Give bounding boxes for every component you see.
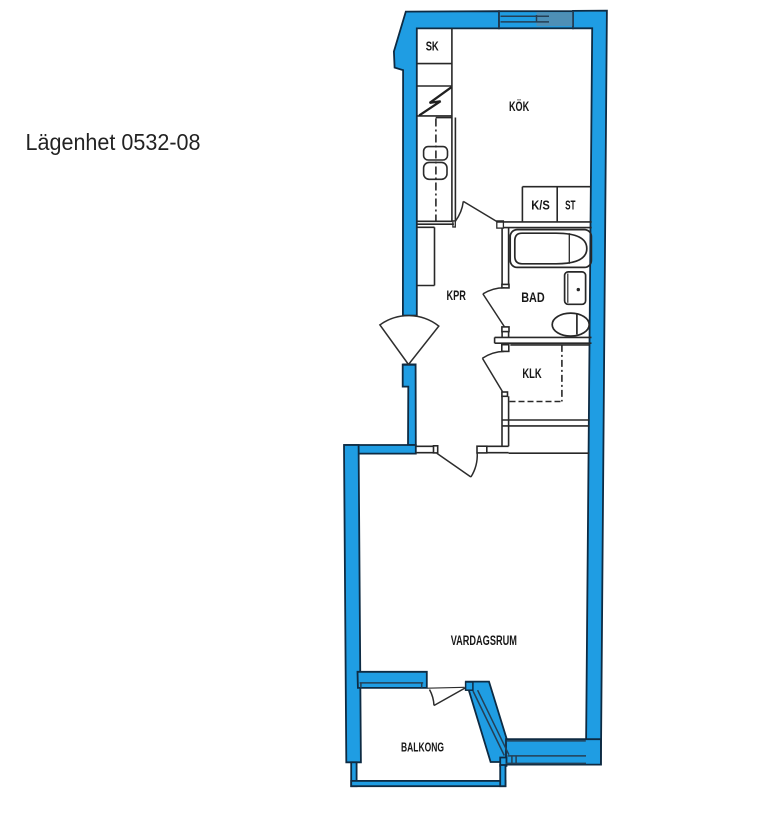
svg-text:BALKONG: BALKONG (401, 739, 444, 754)
svg-text:K/S: K/S (531, 198, 550, 213)
svg-text:ST: ST (565, 198, 575, 213)
svg-text:KÖK: KÖK (509, 98, 529, 114)
svg-text:KPR: KPR (447, 287, 466, 303)
svg-text:Lägenhet 0532-08: Lägenhet 0532-08 (26, 129, 201, 155)
svg-text:VARDAGSRUM: VARDAGSRUM (451, 633, 517, 648)
svg-text:KLK: KLK (522, 366, 541, 381)
svg-text:BAD: BAD (521, 289, 545, 305)
svg-text:SK: SK (426, 39, 439, 54)
